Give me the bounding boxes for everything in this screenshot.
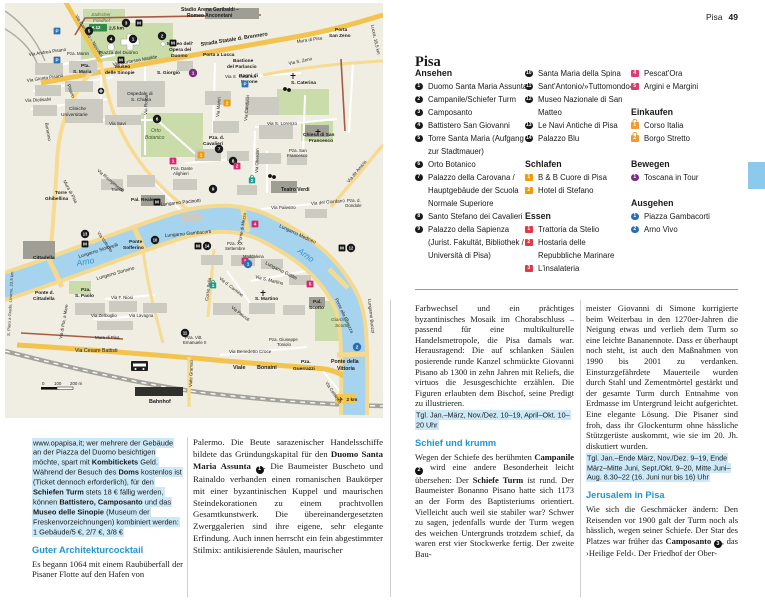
svg-text:1: 1	[212, 283, 215, 288]
legend-item-marker-icon: 4	[631, 70, 639, 78]
map-label: Torre	[55, 190, 67, 196]
map-label: Porta a Lucca	[203, 52, 235, 58]
legend-item-label: Corso Italia	[644, 121, 683, 130]
map-marker-museum: M	[170, 40, 177, 47]
legend-item-marker-icon: 6	[415, 161, 423, 169]
map-label: Orto	[151, 128, 161, 134]
map-label: S. Caterina	[291, 80, 316, 86]
legend-item-label: Argini e Margini	[644, 82, 698, 91]
svg-text:P: P	[55, 29, 58, 34]
legend-item-marker-icon: 12	[525, 96, 533, 104]
legend-item-label: Trattoria da Stelio	[538, 225, 599, 234]
guidebook-page: { "header": { "page_title": "Pisa", "pag…	[0, 0, 765, 600]
legend-item-marker-icon: 10	[525, 70, 533, 78]
legend-item-label: Arno Vivo	[644, 225, 678, 234]
opening-hours: Tgl. Jan.–Ende März, Nov./Dez. 9–19, End…	[586, 453, 738, 482]
legend-item-marker-icon: 7	[415, 174, 423, 182]
map-label: Via Palestro	[271, 205, 296, 210]
paragraph: meister Giovanni di Simone korrigierte b…	[586, 303, 738, 451]
legend-item-label: Pescat'Ora	[644, 69, 682, 78]
map-marker-move-toscana-in-tour: 1	[189, 69, 197, 77]
map-marker-sight-sapienza: 9	[209, 185, 217, 193]
svg-text:2: 2	[161, 34, 164, 39]
leaning-tower-icon	[161, 42, 165, 46]
map-label: S. Martino	[255, 296, 278, 302]
map-label: Pal. Reale	[131, 197, 154, 203]
opening-hours: Tgl. Jan.–März, Nov./Dez. 10–19, April–O…	[415, 411, 574, 430]
svg-text:5: 5	[309, 282, 312, 287]
hospital-icon	[98, 88, 104, 94]
legend-section-heading: Bewegen	[631, 158, 741, 171]
svg-text:4: 4	[254, 222, 257, 227]
map-label: Scotto	[309, 305, 324, 311]
map-marker-museum: M	[339, 245, 346, 252]
map-marker-parking: P	[54, 28, 61, 35]
map-label: Settembre	[225, 246, 246, 251]
map-label: S. Maria	[73, 69, 92, 75]
map-label: Cittadella	[33, 255, 55, 261]
map-label: Via S. Caterina	[225, 74, 256, 79]
map-label: Vittoria	[337, 366, 355, 372]
svg-text:P: P	[55, 58, 58, 63]
inline-sight-marker: 1	[256, 466, 264, 474]
legend-item: 3L'insalateria	[525, 262, 629, 275]
map-marker-eat-hostaria: 2	[234, 163, 241, 170]
map-marker-sight-torre-santa-maria: 5	[85, 27, 93, 35]
legend-item: 1Toscana in Tour	[631, 171, 741, 184]
map-marker-eat-pescatora: 4	[252, 221, 259, 228]
svg-text:M: M	[155, 200, 159, 205]
map-label: Emanuele II	[183, 340, 206, 345]
svg-text:6: 6	[156, 117, 159, 122]
map-label: Gondole	[345, 203, 362, 208]
svg-text:M: M	[171, 41, 175, 46]
map-marker-eat-argini: 5	[307, 281, 314, 288]
map-label: Pal.	[313, 299, 322, 305]
page-number: 49	[729, 12, 738, 22]
legend-item-label: Palazzo della Carovana / Hauptgebäude de…	[428, 173, 519, 208]
legend-section: Einkaufen1Corso Italia2Borgo Stretto	[631, 106, 741, 145]
svg-text:1: 1	[200, 153, 203, 158]
map-label: Pza.	[81, 287, 91, 293]
legend-item-label: Museo Nazionale di San Matteo	[538, 95, 623, 117]
map-label: S. Paolo	[75, 293, 94, 299]
map-label: Via Benedetto Croce	[229, 349, 272, 354]
svg-text:5: 5	[88, 29, 91, 34]
legend-item-marker-icon: 2	[415, 96, 423, 104]
map-label: Porta	[335, 27, 348, 33]
map-label: Cliniche	[69, 106, 86, 112]
legend-item-marker-icon: 1	[525, 226, 533, 234]
legend-section-heading: Ansehen	[415, 67, 529, 80]
column-rule	[580, 300, 581, 597]
map-label: Opera del	[169, 47, 191, 53]
legend-item-label: Duomo Santa Maria Assunta	[428, 82, 527, 91]
legend-item-marker-icon: 2	[631, 226, 639, 234]
svg-text:M: M	[340, 246, 344, 251]
map-marker-sight-campanile: 2	[158, 32, 166, 40]
legend-item: 12Museo Nazionale di San Matteo	[525, 93, 629, 119]
legend-item-marker-icon: 3	[415, 109, 423, 117]
paragraph: Wie sich die Geschmäcker ändern: Den Rei…	[586, 504, 738, 559]
map-marker-sight-orto-botanico: 6	[153, 115, 161, 123]
map-label: Via Zerboglio	[91, 313, 117, 318]
scale-bar	[41, 387, 73, 390]
legend-item: 1Piazza Gambacorti	[631, 210, 741, 223]
map-label: del Parlascio	[227, 64, 257, 70]
map-marker-eat-stelio: 1	[170, 158, 177, 165]
svg-text:13: 13	[83, 232, 88, 237]
legend-item-label: L'insalateria	[538, 264, 579, 273]
svg-text:M: M	[137, 21, 141, 26]
paragraph: Wegen der Schiefe des berühmten Campanil…	[415, 452, 574, 560]
map-label: Cittadella	[33, 296, 55, 302]
map-label: 2 km	[347, 397, 358, 403]
svg-text:10: 10	[153, 238, 158, 243]
legend-column-1: Ansehen1Duomo Santa Maria Assunta2Campan…	[415, 67, 529, 262]
legend-item-label: Piazza Gambacorti	[644, 212, 710, 221]
city-map: A 122,5 kmStadio Arena Garibaldi –Romeo …	[5, 3, 383, 418]
legend-item-marker-icon: 14	[525, 135, 533, 143]
legend-item-label: Le Navi Antiche di Pisa	[538, 121, 618, 130]
paragraph: Es begann 1064 mit einem Raubüberfall de…	[32, 559, 183, 580]
map-label: Scotto	[335, 323, 349, 329]
map-label: Friedhof	[93, 18, 111, 23]
legend-item: 5Argini e Margini	[631, 80, 741, 93]
legend-item-marker-icon: 11	[525, 83, 533, 91]
map-label: delle Sinopie	[105, 70, 135, 76]
legend-item: 1Duomo Santa Maria Assunta	[415, 80, 529, 93]
map-label: Bonaini	[257, 365, 277, 371]
legend-item-label: Battistero San Giovanni	[428, 121, 510, 130]
map-label: Bahnhof	[149, 399, 171, 405]
map-marker-sight-duomo: 1	[129, 35, 137, 43]
legend-item-label: Palazzo della Sapienza (Jurist. Fakultät…	[428, 225, 524, 260]
svg-text:2: 2	[251, 178, 254, 183]
legend-item-marker-icon: 4	[415, 122, 423, 130]
legend-item-marker-icon: 3	[525, 265, 533, 273]
legend-section: Essen1Trattoria da Stelio2Hostaria delle…	[525, 210, 629, 275]
legend-section: 4Pescat'Ora5Argini e Margini	[631, 67, 741, 93]
paragraph: Palermo. Die Beute sarazenischer Handels…	[193, 437, 383, 557]
map-label: Trieste	[111, 187, 125, 192]
legend-item: 9Palazzo della Sapienza (Jurist. Fakultä…	[415, 223, 529, 262]
map-label: Pza.	[301, 359, 311, 365]
legend-item: 14Palazzo Blu	[525, 132, 629, 145]
battistero-icon	[108, 44, 115, 51]
legend-item-marker-icon: 1	[525, 174, 533, 182]
legend-section: Ausgehen1Piazza Gambacorti2Arno Vivo	[631, 197, 741, 236]
legend-item: 4Pescat'Ora	[631, 67, 741, 80]
map-marker-hotel-cuore: 1	[198, 152, 205, 159]
map-marker-go-arno-vivo: 2	[353, 343, 361, 351]
map-label: Piazza del Duomo	[99, 50, 138, 56]
map-marker-parking: P	[242, 81, 249, 88]
svg-text:1: 1	[132, 37, 135, 42]
map-label: Solferino	[123, 245, 144, 251]
map-label: Botanico	[145, 135, 165, 141]
ticket-infobox: www.opapisa.it; wer mehrere der Gebäude …	[32, 438, 183, 537]
legend-item: 8Santo Stefano dei Cavalieri	[415, 210, 529, 223]
section-heading: Schief und krumm	[415, 438, 574, 449]
legend-item: 7Palazzo della Carovana / Hauptgebäude d…	[415, 171, 529, 210]
map-label: Via Savi	[109, 121, 126, 126]
svg-text:M: M	[196, 244, 200, 249]
svg-text:2: 2	[226, 101, 229, 106]
legend-item: 13Le Navi Antiche di Pisa	[525, 119, 629, 132]
legend-divider-rule	[415, 289, 738, 290]
legend-item: 2Borgo Stretto	[631, 132, 741, 145]
legend-item-label: Torre Santa Maria (Aufgang zur Stadtmaue…	[428, 134, 524, 156]
map-label: A 12	[92, 25, 102, 30]
section-heading: Guter Architekturcocktail	[32, 545, 183, 556]
legend-column-3: 4Pescat'Ora5Argini e MarginiEinkaufen1Co…	[631, 67, 741, 236]
legend-item-marker-icon: 1	[631, 174, 639, 182]
map-label: 100	[54, 381, 62, 386]
map-label: Chiesa di San	[303, 132, 335, 138]
svg-text:3: 3	[125, 21, 128, 26]
map-marker-parking: P	[54, 57, 61, 64]
city-map-svg: A 122,5 kmStadio Arena Garibaldi –Romeo …	[5, 3, 383, 418]
map-label: Romeo Anconetani	[187, 13, 233, 19]
legend-section-heading: Ausgehen	[631, 197, 741, 210]
map-marker-sight-navi-antiche: 13	[81, 230, 89, 238]
legend-section: Bewegen1Toscana in Tour	[631, 158, 741, 184]
map-label: Mura di Pisa	[95, 335, 120, 340]
map-label: Guerrazzi	[293, 366, 315, 372]
svg-text:9: 9	[212, 187, 215, 192]
legend-item: 1Trattoria da Stelio	[525, 223, 629, 236]
legend-item-marker-icon: 2	[525, 239, 533, 247]
map-label: Via Roma	[143, 94, 149, 115]
legend-item: 4Battistero San Giovanni	[415, 119, 529, 132]
legend-section: Schlafen1B & B Cuore di Pisa2Hotel di St…	[525, 158, 629, 197]
map-label: 2,5 km	[109, 26, 124, 32]
map-label: Via Oberdan	[254, 148, 260, 173]
chapter-side-tab	[748, 162, 765, 189]
svg-text:M: M	[83, 242, 87, 247]
legend-item-label: Borgo Stretto	[644, 134, 690, 143]
map-label: Pza. d.	[209, 135, 224, 141]
map-label: Via Lavagna	[129, 313, 154, 318]
inline-sight-marker: 2	[415, 467, 423, 475]
map-label: Francesco	[309, 138, 333, 144]
svg-text:M: M	[119, 58, 123, 63]
legend-item-label: Sant'Antonio/»Tuttomondo«	[538, 82, 634, 91]
paragraph: Farbwechsel und ein prächtiges byzantini…	[415, 303, 574, 409]
map-label: Ghibellina	[45, 196, 69, 202]
svg-text:14: 14	[205, 244, 210, 249]
legend-item-marker-icon: 9	[415, 226, 423, 234]
map-label: Via F. Niosi	[111, 295, 133, 300]
map-label: Museo	[115, 64, 130, 70]
legend-item-label: Santa Maria della Spina	[538, 69, 621, 78]
article-column-c: Farbwechsel und ein prächtiges byzantini…	[415, 303, 574, 559]
legend-item-marker-icon: 1	[415, 83, 423, 91]
map-marker-sight-carovana: 7	[215, 145, 223, 153]
svg-text:11: 11	[183, 331, 188, 336]
map-label: Ponte	[129, 239, 143, 245]
legend-item-label: Hotel di Stefano	[538, 186, 593, 195]
map-label: Viale	[233, 365, 246, 371]
bus-stop-icon	[131, 361, 148, 371]
legend-item: 2Campanile/Schiefer Turm	[415, 93, 529, 106]
legend-item-label: Palazzo Blu	[538, 134, 579, 143]
legend-item: 2Hotel di Stefano	[525, 184, 629, 197]
map-marker-go-piazza-gambacorti: 1	[244, 260, 252, 268]
map-marker-sight-camposanto: 3	[122, 19, 130, 27]
legend-section-heading: Schlafen	[525, 158, 629, 171]
map-marker-museum: M	[118, 57, 125, 64]
map-label: Duomo	[171, 53, 188, 59]
legend-item: 3Camposanto	[415, 106, 529, 119]
map-label: Toniolo	[277, 342, 291, 347]
map-marker-hotel-di-stefano: 2	[224, 100, 231, 107]
legend-section: Ansehen1Duomo Santa Maria Assunta2Campan…	[415, 67, 529, 262]
map-marker-museum: M	[154, 199, 161, 206]
svg-text:2: 2	[356, 345, 359, 350]
map-marker-sight-palazzo-blu: 14	[203, 242, 211, 250]
map-label: Universitarie	[61, 112, 88, 118]
map-marker-museum: M	[136, 20, 143, 27]
legend-item-label: Camposanto	[428, 108, 472, 117]
legend-item-marker-icon: 1	[631, 213, 639, 221]
legend-item: 2Arno Vivo	[631, 223, 741, 236]
map-label: Pta.	[81, 63, 90, 69]
map-label: Giardino	[331, 317, 349, 323]
page-header: Pisa49	[706, 12, 738, 22]
map-label: Francesco	[287, 153, 308, 158]
map-label: Ponte d.	[35, 290, 54, 296]
legend-section-heading: Einkaufen	[631, 106, 741, 119]
legend-item-label: Toscana in Tour	[644, 173, 698, 182]
map-label: Via S. Lorenzo	[267, 121, 297, 126]
legend-item-marker-icon: 2	[525, 187, 533, 195]
map-label: San Zeno	[329, 33, 351, 39]
svg-text:4: 4	[110, 37, 113, 42]
legend-item-marker-icon: 2	[631, 135, 639, 143]
map-label: Bastione	[233, 58, 254, 64]
legend-item-label: B & B Cuore di Pisa	[538, 173, 607, 182]
map-label: Viale Gramsci	[188, 360, 194, 387]
legend-item: 11Sant'Antonio/»Tuttomondo«	[525, 80, 629, 93]
svg-text:P: P	[243, 82, 246, 87]
header-section-title: Pisa	[706, 12, 723, 22]
map-marker-sight-spina: 10	[151, 236, 159, 244]
map-label: 200 m	[70, 381, 83, 386]
legend-item-marker-icon: 13	[525, 122, 533, 130]
map-label: Ponte della	[331, 359, 359, 365]
map-label: Alighieri	[173, 171, 189, 176]
map-label: S. Giorgio	[157, 70, 180, 76]
map-marker-sight-san-matteo: 12	[347, 244, 355, 252]
legend-item-label: Campanile/Schiefer Turm	[428, 95, 516, 104]
section-heading: Jerusalem in Pisa	[586, 490, 738, 501]
article-column-a: www.opapisa.it; wer mehrere der Gebäude …	[32, 438, 183, 580]
article-column-d: meister Giovanni di Simone korrigierte b…	[586, 303, 738, 559]
legend-item-label: Santo Stefano dei Cavalieri	[428, 212, 523, 221]
legend-item-marker-icon: 8	[415, 213, 423, 221]
map-label: Pza. Manin	[67, 51, 90, 56]
legend-item: 5Torre Santa Maria (Aufgang zur Stadtmau…	[415, 132, 529, 158]
column-rule	[390, 300, 391, 597]
map-label: Jüdischer	[90, 12, 111, 17]
legend-item-marker-icon: 5	[415, 135, 423, 143]
legend-column-2: 10Santa Maria della Spina11Sant'Antonio/…	[525, 67, 629, 275]
legend-section-heading: Essen	[525, 210, 629, 223]
map-marker-museum: M	[195, 243, 202, 250]
svg-text:1: 1	[247, 262, 250, 267]
legend-section: 10Santa Maria della Spina11Sant'Antonio/…	[525, 67, 629, 145]
svg-text:2: 2	[236, 164, 239, 169]
legend-item: 1Corso Italia	[631, 119, 741, 132]
legend-item-label: Hostaria delle Repubbliche Marinare	[538, 238, 614, 260]
map-marker-sight-tuttomondo: 11	[181, 329, 189, 337]
legend-item: 10Santa Maria della Spina	[525, 67, 629, 80]
inline-sight-marker: 3	[714, 540, 722, 548]
legend-item-marker-icon: 1	[631, 122, 639, 130]
map-label: Ospedale di	[127, 91, 153, 97]
legend-item-label: Orto Botanico	[428, 160, 476, 169]
legend-item: 6Orto Botanico	[415, 158, 529, 171]
legend-item: 1B & B Cuore di Pisa	[525, 171, 629, 184]
map-label: ✈	[338, 397, 344, 404]
legend-item: 2Hostaria delle Repubbliche Marinare	[525, 236, 629, 262]
map-label: Via Cesare Battisti	[75, 348, 118, 354]
svg-text:7: 7	[218, 147, 221, 152]
map-marker-sight-battistero: 4	[107, 35, 115, 43]
bahnhof-building	[135, 387, 183, 396]
svg-text:1: 1	[192, 71, 195, 76]
svg-text:1: 1	[172, 159, 175, 164]
column-rule	[187, 437, 188, 597]
legend-item-marker-icon: 5	[631, 83, 639, 91]
map-marker-museum: M	[82, 241, 89, 248]
article-column-b: Palermo. Die Beute sarazenischer Handels…	[193, 437, 383, 557]
map-label: Teatro Verdi	[281, 187, 310, 193]
svg-text:12: 12	[349, 246, 354, 251]
